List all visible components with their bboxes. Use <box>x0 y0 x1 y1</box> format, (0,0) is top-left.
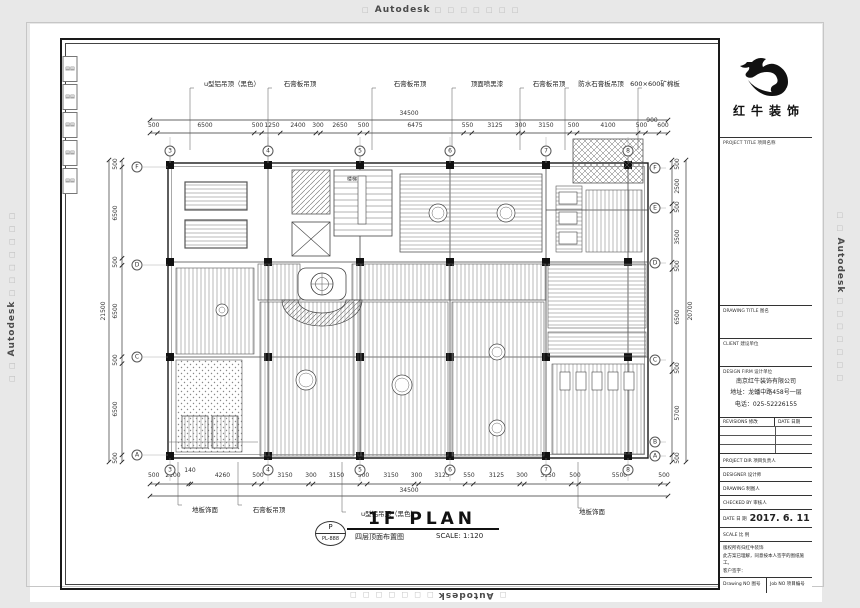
plan-label: 6 <box>445 465 456 476</box>
project-title-label: PROJECT TITLE 项目名称 <box>720 138 812 146</box>
plan-label: C <box>132 352 143 363</box>
plan-label: 34500 <box>399 488 418 494</box>
plan-label: 500 <box>113 158 119 169</box>
plan-label: 5 <box>355 465 366 476</box>
plan-label: 600 <box>657 123 668 129</box>
plan-label: 500 <box>675 453 681 464</box>
plan-label: 2400 <box>290 123 305 129</box>
plan-label: 3150 <box>538 123 553 129</box>
plan-label: D <box>132 260 143 271</box>
plan-label: 3 <box>165 465 176 476</box>
plan-label: 500 <box>148 123 159 129</box>
watermark-squares: □ □ <box>836 212 844 233</box>
plan-label: 3500 <box>675 229 681 244</box>
client-label: CLIENT 建设单位 <box>720 339 812 347</box>
designer-row: DESIGNER 设计师 <box>720 468 812 482</box>
sheet-ref-letter: P <box>328 522 332 533</box>
plan-label: 500 <box>658 473 669 479</box>
plan-scale-note: SCALE: 1:120 <box>436 532 483 540</box>
plan-label: 500 <box>113 256 119 267</box>
watermark-squares: □ □ □ □ □ □ □ <box>348 591 434 599</box>
plan-label: 300 <box>515 123 526 129</box>
job-no-label: Job NO 项目编号 <box>767 578 812 593</box>
plan-title: 1F PLAN <box>368 509 476 529</box>
note-line-2: 此方案已理解，同意按本人签字的图纸施工。 <box>723 553 810 568</box>
plan-label: 7 <box>541 465 552 476</box>
plan-label: A <box>132 450 143 461</box>
plan-title-underline <box>347 528 499 530</box>
plan-label: 2500 <box>675 178 681 193</box>
plan-label: 6500 <box>113 303 119 318</box>
plan-label: 550 <box>462 123 473 129</box>
plan-label: 8 <box>623 465 634 476</box>
sheet-ref-bubble: P PL-888 <box>315 521 346 546</box>
plan-label: 500 <box>148 473 159 479</box>
drawing-no-label: Drawing NO 图号 <box>720 578 767 593</box>
plan-label: 地板饰面 <box>579 509 605 516</box>
plan-label: 500 <box>675 202 681 213</box>
plan-label: F <box>132 162 143 173</box>
client-section: CLIENT 建设单位 <box>720 339 812 367</box>
plan-label: 500 <box>568 123 579 129</box>
plan-label: 550 <box>463 473 474 479</box>
plan-label: 4260 <box>215 473 230 479</box>
revision-row <box>720 436 812 445</box>
plan-label: ▤▤ <box>63 56 78 82</box>
autodesk-logo-text: Autodesk <box>375 5 431 15</box>
plan-label: ▤▤ <box>63 112 78 138</box>
plan-label: 石膏板吊顶 <box>253 507 286 514</box>
company-address: 地址：龙蟠中路458号一层 <box>720 387 812 398</box>
revision-row <box>720 445 812 453</box>
plan-label: 300 <box>312 123 323 129</box>
watermark-squares: □ □ □ □ □ □ □ <box>836 297 844 383</box>
plan-label: 500 <box>113 453 119 464</box>
plan-label: 34500 <box>399 111 418 117</box>
plan-label: 6500 <box>197 123 212 129</box>
plan-label: 顶面喷黑漆 <box>471 81 504 88</box>
watermark-squares: □ □ □ □ □ □ □ <box>435 6 521 14</box>
plan-label: 石膏板吊顶 <box>533 81 566 88</box>
note-line-1: 版权所有归红牛装饰 <box>723 545 810 553</box>
drafter-row: DRAWING 制图人 <box>720 482 812 496</box>
plan-label: 3 <box>165 146 176 157</box>
plan-label: 6500 <box>675 309 681 324</box>
plan-label: 300 <box>305 473 316 479</box>
plan-label: 140 <box>184 468 195 474</box>
autodesk-logo-text: Autodesk <box>438 590 494 600</box>
drawing-title-label: DRAWING TITLE 图名 <box>720 306 812 314</box>
plan-label: D <box>650 258 661 269</box>
plan-label: 500 <box>252 473 263 479</box>
checked-by-row: CHECKED BY 审核人 <box>720 496 812 510</box>
autodesk-watermark-right: □ □ Autodesk □ □ □ □ □ □ □ <box>835 212 845 383</box>
plan-label: u型铝吊顶（黑色） <box>204 81 260 88</box>
plan-subtitle: 四层顶面布置图 <box>355 532 404 542</box>
project-title-section: PROJECT TITLE 项目名称 <box>720 138 812 306</box>
red-bull-logo-icon <box>738 56 794 100</box>
autodesk-logo-text: Autodesk <box>7 301 17 357</box>
date-label: DATE 日 期 <box>723 516 747 522</box>
plan-label: 3150 <box>277 473 292 479</box>
plan-label: 300 <box>516 473 527 479</box>
plan-label: 石膏板吊顶 <box>284 81 317 88</box>
plan-label: 500 <box>675 362 681 373</box>
watermark-squares: □ □ □ □ □ □ □ <box>8 211 16 297</box>
plan-label: 500 <box>113 354 119 365</box>
plan-label: B <box>650 437 661 448</box>
copyright-note: 版权所有归红牛装饰 此方案已理解，同意按本人签字的图纸施工。 客户签字： <box>720 542 812 578</box>
drawing-title-section: DRAWING TITLE 图名 <box>720 306 812 339</box>
plan-label: C <box>650 355 661 366</box>
plan-label: 地板饰面 <box>192 507 218 514</box>
plan-label: 3150 <box>329 473 344 479</box>
plan-label: 5 <box>355 146 366 157</box>
plan-label: 8 <box>623 146 634 157</box>
autodesk-logo-text: Autodesk <box>835 238 845 294</box>
plan-label: 900 <box>646 118 657 124</box>
watermark-squares: □ <box>498 591 507 599</box>
plan-label: ▤▤ <box>63 140 78 166</box>
revisions-date-header: DATE 日期 <box>775 418 812 426</box>
sheet-number-row: Drawing NO 图号 Job NO 项目编号 <box>720 578 812 593</box>
plan-label: 3150 <box>383 473 398 479</box>
title-block: 红牛装饰 PROJECT TITLE 项目名称 DRAWING TITLE 图名… <box>718 38 812 590</box>
sheet-ref-number: PL-888 <box>322 534 339 544</box>
note-line-3: 客户签字： <box>723 568 810 576</box>
plan-label: 楼梯 <box>347 178 357 183</box>
revisions-section: REVISIONS 修改 DATE 日期 <box>720 418 812 454</box>
watermark-squares: □ <box>362 6 371 14</box>
plan-label: 500 <box>675 260 681 271</box>
plan-label: 6475 <box>407 123 422 129</box>
plan-label: A <box>650 451 661 462</box>
plan-label: 防水石膏板吊顶 <box>578 81 624 88</box>
plan-label: 500 <box>675 158 681 169</box>
date-value: 2017. 6. 11 <box>750 513 810 524</box>
plan-label: 20700 <box>688 301 694 320</box>
design-firm-section: DESIGN FIRM 设计单位 南京红牛装饰有限公司 地址：龙蟠中路458号一… <box>720 367 812 418</box>
cad-sheet: □ Autodesk □ □ □ □ □ □ □ □ Autodesk □ □ … <box>0 0 860 608</box>
autodesk-watermark-bottom: □ Autodesk □ □ □ □ □ □ □ <box>348 590 506 600</box>
plan-label: 7 <box>541 146 552 157</box>
plan-label: 3125 <box>487 123 502 129</box>
plan-label: ▤▤ <box>63 168 78 194</box>
revision-row <box>720 427 812 436</box>
plan-label: 3125 <box>489 473 504 479</box>
plan-label: 500 <box>569 473 580 479</box>
plan-label: 2650 <box>332 123 347 129</box>
sheet-border-inner <box>65 43 807 585</box>
plan-label: 6500 <box>113 205 119 220</box>
plan-label: E <box>650 203 661 214</box>
revisions-header: REVISIONS 修改 <box>720 418 775 426</box>
project-dir-row: PROJECT DIR 项目负责人 <box>720 454 812 468</box>
plan-label: 21500 <box>101 301 107 320</box>
company-logo-section: 红牛装饰 <box>720 38 812 138</box>
company-logo-name: 红牛装饰 <box>727 102 805 119</box>
plan-label: 5700 <box>675 406 681 421</box>
plan-label: 6500 <box>113 402 119 417</box>
plan-label: 500 <box>252 123 263 129</box>
watermark-squares: □ □ <box>8 361 16 382</box>
design-firm-label: DESIGN FIRM 设计单位 <box>720 367 812 375</box>
plan-label: ▤▤ <box>63 84 78 110</box>
plan-label: 石膏板吊顶 <box>394 81 427 88</box>
plan-label: 6 <box>445 146 456 157</box>
plan-label: 4 <box>263 146 274 157</box>
autodesk-watermark-left: □ □ Autodesk □ □ □ □ □ □ □ <box>7 211 17 382</box>
plan-label: 500 <box>358 123 369 129</box>
plan-label: 1250 <box>264 123 279 129</box>
autodesk-watermark-top: □ Autodesk □ □ □ □ □ □ □ <box>362 5 520 15</box>
company-name: 南京红牛装饰有限公司 <box>720 376 812 387</box>
plan-label: 300 <box>411 473 422 479</box>
plan-label: 4 <box>263 465 274 476</box>
plan-label: 4100 <box>600 123 615 129</box>
company-phone: 电话：025-52226155 <box>720 399 812 410</box>
plan-label: F <box>650 163 661 174</box>
scale-row: SCALE 比 例 <box>720 528 812 542</box>
plan-label: 600×600矿棉板 <box>630 81 680 88</box>
date-row: DATE 日 期 2017. 6. 11 <box>720 510 812 528</box>
